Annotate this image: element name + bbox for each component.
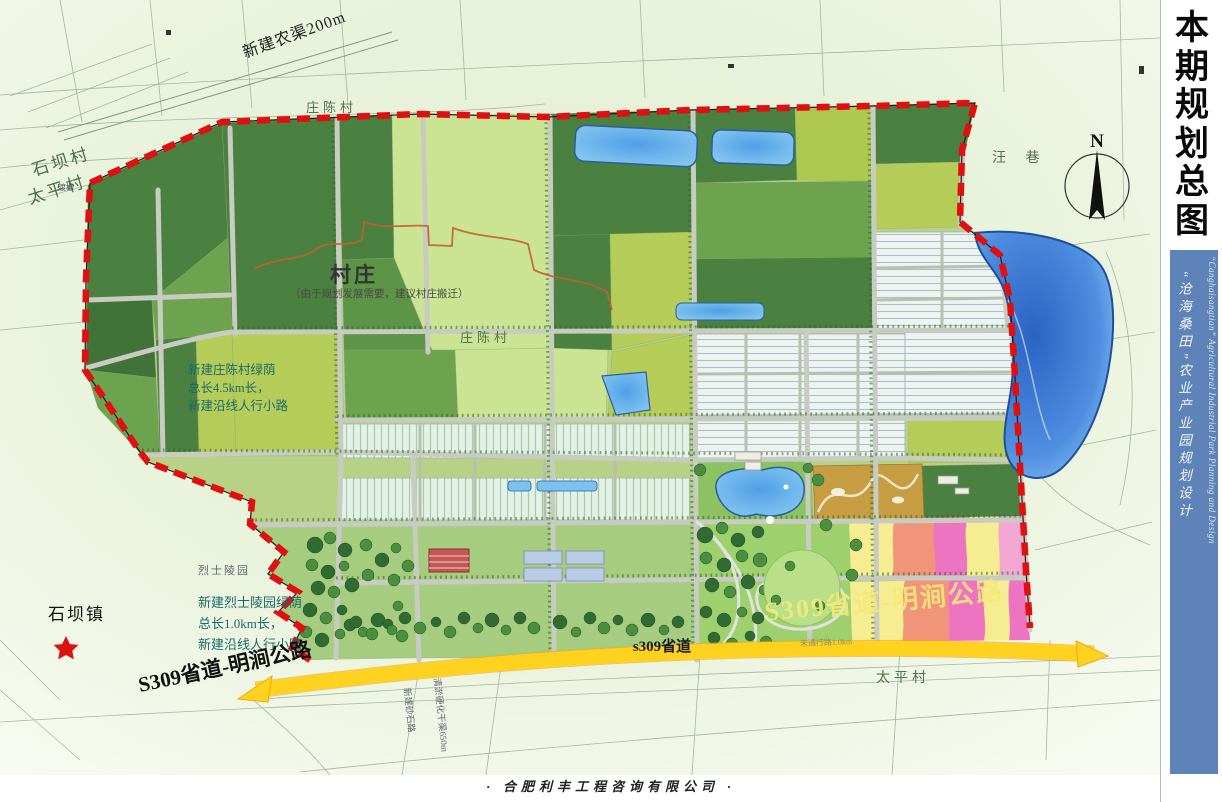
label-zhuangchen-top: 庄陈村 bbox=[306, 100, 357, 115]
red-roof-building bbox=[429, 549, 469, 572]
s309-label: s309省道 bbox=[633, 637, 691, 655]
label-shiba-town: 石坝镇 bbox=[48, 605, 105, 624]
sheet-title-char: 划 bbox=[1161, 126, 1222, 165]
sheet-title-char: 图 bbox=[1161, 203, 1222, 242]
center-pond bbox=[716, 467, 804, 516]
svg-text:新建庄陈村绿荫: 新建庄陈村绿荫 bbox=[188, 362, 276, 377]
label-village-title: 村庄 bbox=[330, 263, 378, 287]
right-sidebar: 本 期 规 划 总 图 “沧海桑田”农业产业园规划设计 “Canghaisang… bbox=[1160, 0, 1222, 802]
orchard-block bbox=[813, 464, 924, 520]
sheet-title-char: 期 bbox=[1161, 49, 1222, 88]
company-footer: · 合肥利丰工程咨询有限公司 · bbox=[0, 776, 1222, 795]
label-zhuangchen-mid: 庄陈村 bbox=[460, 330, 511, 345]
sheet-title-char: 本 bbox=[1161, 10, 1222, 49]
compass-n-label: N bbox=[1090, 131, 1104, 152]
svg-text:新建烈士陵园绿荫: 新建烈士陵园绿荫 bbox=[198, 595, 302, 610]
map-area: s309省道 S309省道-明涧公路 未通行路1.0km 新建农渠200m 渡槽… bbox=[0, 0, 1160, 775]
project-title-panel: “沧海桑田”农业产业园规划设计 “Canghaisangtian” Agricu… bbox=[1170, 250, 1218, 774]
sheet-title-char: 总 bbox=[1161, 164, 1222, 203]
svg-text:总长1.0km长，: 总长1.0km长， bbox=[198, 616, 283, 631]
road-small-note: 未通行路1.0km bbox=[800, 636, 853, 648]
label-village-note: （由于规划发展需要，建议村庄搬迁） bbox=[290, 287, 469, 300]
project-title-en: “Canghaisangtian” Agricultural Industria… bbox=[1207, 256, 1217, 768]
plan-sheet: s309省道 S309省道-明涧公路 未通行路1.0km 新建农渠200m 渡槽… bbox=[0, 0, 1222, 802]
label-martyr-cemetery: 烈士陵园 bbox=[198, 563, 250, 577]
svg-text:总长4.5km长，: 总长4.5km长， bbox=[188, 381, 270, 395]
sheet-title: 本 期 规 划 总 图 bbox=[1161, 10, 1222, 241]
project-title-cn: “沧海桑田”农业产业园规划设计 bbox=[1173, 270, 1193, 762]
label-wangxiang: 汪 巷 bbox=[992, 150, 1048, 166]
label-taiping-south: 太平村 bbox=[876, 670, 930, 686]
sheet-title-char: 规 bbox=[1161, 87, 1222, 126]
svg-text:新建沿线人行小路: 新建沿线人行小路 bbox=[188, 398, 289, 413]
master-plan-map: s309省道 S309省道-明涧公路 未通行路1.0km 新建农渠200m 渡槽… bbox=[0, 0, 1160, 775]
